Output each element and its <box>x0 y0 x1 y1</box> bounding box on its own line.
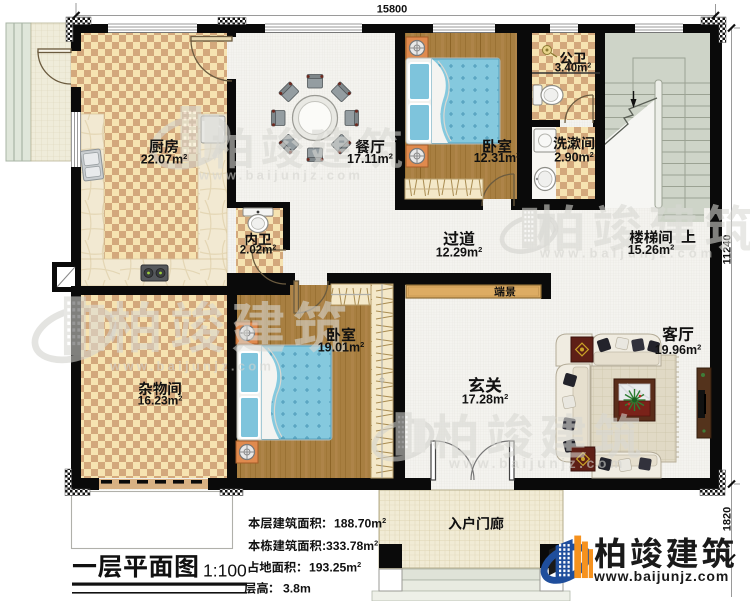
svg-text:2.02m2: 2.02m2 <box>240 245 277 257</box>
svg-text:22.07m2: 22.07m2 <box>141 152 188 166</box>
svg-text:1820: 1820 <box>721 507 733 531</box>
svg-text:12.31m2: 12.31m2 <box>474 151 521 165</box>
svg-text:12.29m2: 12.29m2 <box>436 245 483 259</box>
svg-text:www.baijunjz.com: www.baijunjz.com <box>198 168 363 183</box>
svg-text:19.01m2: 19.01m2 <box>318 340 365 354</box>
svg-text:www.baijunjz.com: www.baijunjz.com <box>593 568 729 584</box>
svg-text:www.baijunjz.com: www.baijunjz.com <box>109 359 274 374</box>
svg-text:15.26m2: 15.26m2 <box>628 243 675 257</box>
svg-text:17.11m2: 17.11m2 <box>347 152 393 166</box>
svg-text:19.96m2: 19.96m2 <box>655 343 702 357</box>
svg-text:www.baijunjz.com: www.baijunjz.com <box>448 455 626 471</box>
svg-text:193.25m2: 193.25m2 <box>309 560 361 574</box>
svg-text:17.28m2: 17.28m2 <box>462 392 509 406</box>
svg-text:3.8m: 3.8m <box>283 581 311 595</box>
svg-text:188.70m2: 188.70m2 <box>334 516 386 530</box>
svg-text:333.78m2: 333.78m2 <box>326 539 378 553</box>
svg-text:16.23m2: 16.23m2 <box>138 394 183 408</box>
svg-text:3.40m2: 3.40m2 <box>555 63 592 75</box>
svg-text:15800: 15800 <box>377 3 408 15</box>
svg-text:1:100: 1:100 <box>203 561 247 581</box>
svg-text:2.90m2: 2.90m2 <box>554 150 594 164</box>
